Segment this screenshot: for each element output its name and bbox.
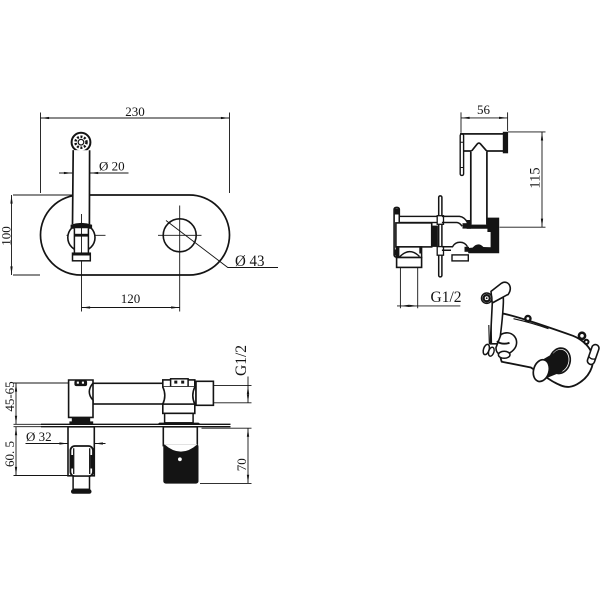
svg-text:70: 70 — [234, 458, 249, 471]
svg-text:230: 230 — [125, 104, 145, 119]
svg-text:100: 100 — [0, 226, 13, 246]
svg-text:115: 115 — [528, 167, 544, 188]
svg-text:Ø 43: Ø 43 — [235, 253, 265, 270]
svg-text:Ø 20: Ø 20 — [99, 159, 125, 174]
svg-text:56: 56 — [477, 102, 491, 117]
svg-text:45-65: 45-65 — [2, 381, 17, 411]
svg-text:Ø 32: Ø 32 — [26, 429, 52, 444]
svg-text:G1/2: G1/2 — [233, 345, 250, 376]
svg-text:G1/2: G1/2 — [431, 289, 462, 306]
svg-text:120: 120 — [121, 291, 141, 306]
svg-text:60. 5: 60. 5 — [2, 441, 17, 467]
